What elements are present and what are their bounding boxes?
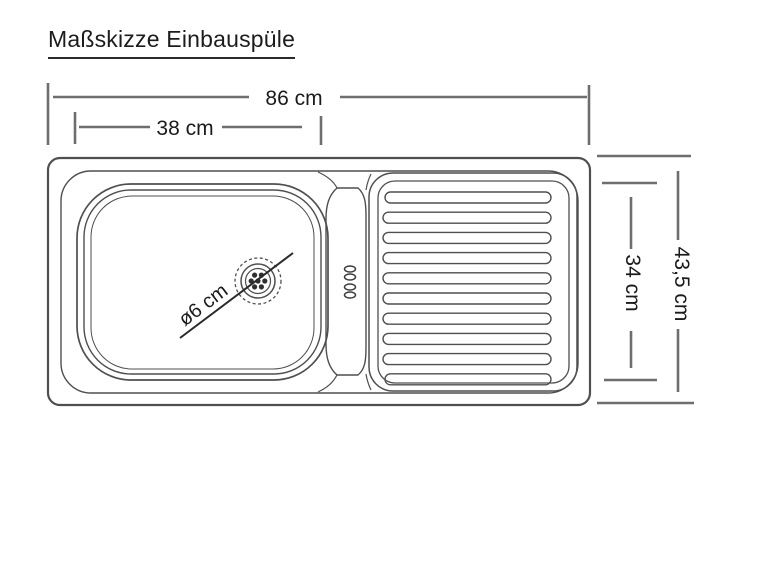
tap-holes — [345, 266, 356, 298]
dimension-sketch-page: Maßskizze Einbauspüle — [0, 0, 770, 578]
divider-curve — [318, 375, 337, 392]
drainboard-rib — [383, 273, 551, 284]
drainboard-rib — [383, 354, 551, 365]
drainboard-rib — [383, 212, 551, 223]
drainboard-rib — [383, 293, 551, 304]
sink-inner-rim — [61, 171, 578, 393]
sink-outer-rim — [48, 158, 590, 405]
drainboard-rib — [383, 232, 551, 243]
tap-hole — [345, 266, 356, 272]
tap-hole — [345, 284, 356, 290]
drainboard-rib — [383, 253, 551, 264]
basin-bowl-mid — [84, 190, 321, 374]
drainboard-rib — [383, 333, 551, 344]
drain-strainer — [235, 258, 281, 304]
drainboard-outer — [369, 173, 577, 391]
dimension-lines — [48, 83, 694, 403]
dim-inner-depth-label: 34 cm — [621, 254, 644, 311]
divider-curve — [318, 172, 337, 188]
drainboard-rib — [385, 192, 551, 203]
basin-bowl-outer — [77, 184, 328, 380]
tap-hole — [345, 292, 356, 298]
drainboard-rib — [383, 313, 551, 324]
sink-dimension-drawing: ø6 cm 86 cm 38 cm 43,5 — [0, 0, 770, 578]
dim-overall-depth-label: 43,5 cm — [670, 247, 693, 322]
drainboard-inner — [378, 181, 569, 383]
tap-deck-panel — [326, 188, 366, 375]
tap-hole — [345, 274, 356, 280]
sink-outline-group — [48, 158, 590, 405]
drainboard-ribs — [383, 192, 551, 385]
dim-overall-width-label: 86 cm — [265, 87, 322, 110]
dim-basin-width-label: 38 cm — [156, 117, 213, 140]
